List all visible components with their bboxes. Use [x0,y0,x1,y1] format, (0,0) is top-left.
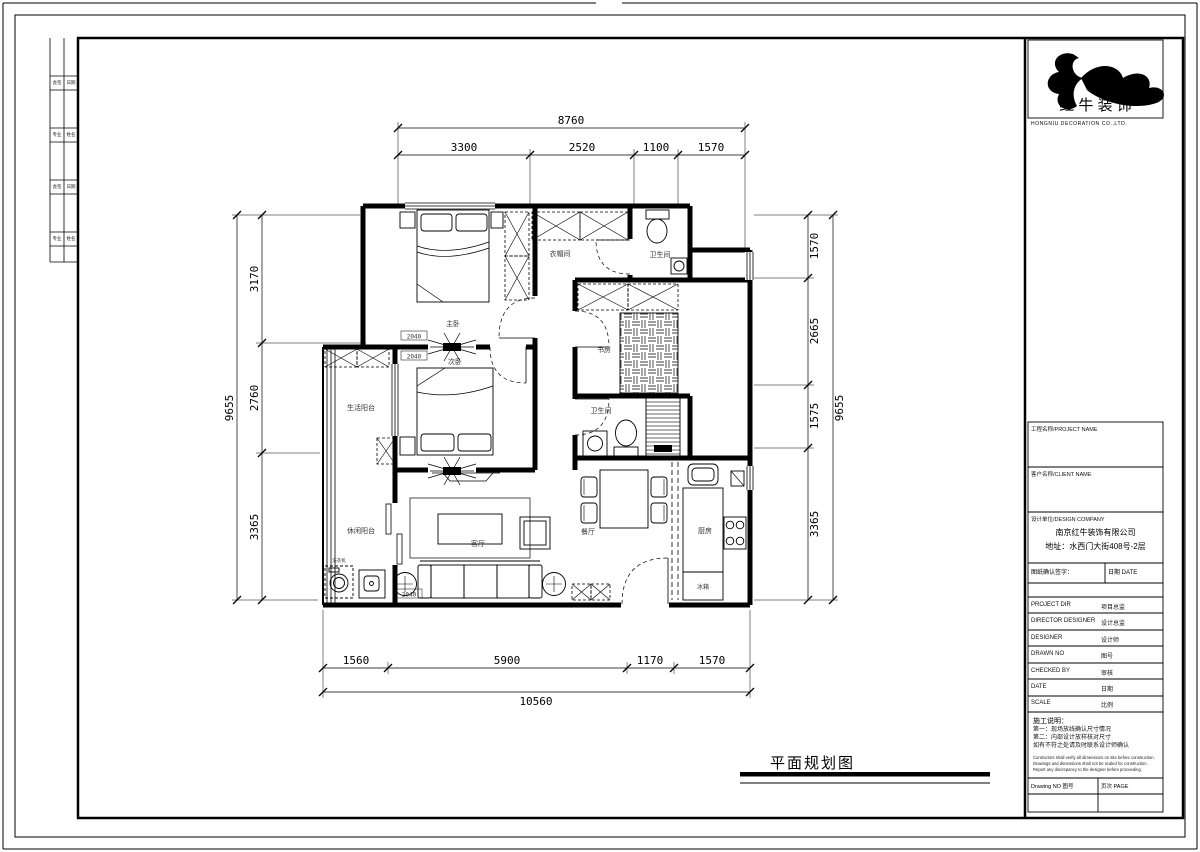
sheet-title: 平面规划图 [770,752,855,773]
floor-plan [323,202,755,610]
note-line: 第二：内部设计放样核对尺寸 [1033,734,1159,742]
living-furniture [394,473,566,598]
dim-top-total: 8760 [558,114,585,127]
wardrobes [325,212,678,600]
door-tag-3: 2040 [402,592,417,599]
confirm-label: 图纸确认签字： [1031,567,1073,576]
wc-fixtures [646,210,687,274]
strip-cell: 姓名 [64,128,78,142]
company-address: 地址：水西门大街408号-2层 [1028,541,1163,552]
strip-cell: 专业 [50,232,64,246]
label-bath: 卫生间 [591,406,612,415]
field-project-name: 工程名称/PROJECT NAME [1031,425,1166,433]
dim-right-total: 9655 [833,395,846,422]
field-design-company: 设计单位/DESIGN COMPANY [1031,515,1166,523]
svg-text:1570: 1570 [698,141,725,154]
svg-text:2760: 2760 [248,385,261,412]
tb-row: CHECKED BY审核 [1031,668,1161,674]
door-tag-1: 2040 [407,334,422,341]
label-kitchen: 厨房 [698,526,712,535]
sliding-doors [386,462,678,600]
balcony-fixtures [325,566,385,598]
footer-drawing-no: Drawing NO 图号 [1031,782,1073,790]
tb-row: DESIGNER设计师 [1031,635,1161,641]
tb-row: DRAWN NO图号 [1031,651,1161,657]
svg-text:3365: 3365 [808,511,821,538]
drawing-sheet: 主卧 衣帽间 卫生间 次卧 书房 卫生间 生活阳台 休闲阳台 客厅 餐厅 厨房 … [0,0,1200,852]
strip-cell: 姓名 [64,232,78,246]
svg-text:1570: 1570 [699,654,726,667]
svg-text:1575: 1575 [808,403,821,430]
cad-linework: 主卧 衣帽间 卫生间 次卧 书房 卫生间 生活阳台 休闲阳台 客厅 餐厅 厨房 … [0,0,1200,852]
strip-cell: 日期 [64,76,78,90]
svg-text:1570: 1570 [808,233,821,260]
confirm-date-label: 日期 DATE [1108,567,1137,576]
field-client-name: 客户名称/CLIENT NAME [1031,470,1166,478]
label-balcony-top: 生活阳台 [347,403,375,412]
label-living: 客厅 [471,539,485,548]
label-fridge: 冰箱 [697,583,709,591]
svg-text:2665: 2665 [808,318,821,345]
page-borders [3,3,1197,849]
label-master: 主卧 [446,319,460,328]
dim-left-total: 9655 [223,395,236,422]
svg-text:3300: 3300 [451,141,478,154]
svg-text:1100: 1100 [643,141,670,154]
kitchen-fixtures [683,464,746,600]
footer-page: 页次 PAGE [1101,782,1128,790]
note-line: 第一：现场放线确认尺寸情况 [1033,726,1159,734]
label-washer: 洗衣机 [332,557,346,564]
sheet-title-underline [740,772,990,783]
notes-title: 施工说明： [1033,716,1068,726]
dim-bottom-total: 10560 [519,695,552,708]
wall-openings [391,202,755,610]
dining-set [581,470,667,528]
door-tag-2: 2040 [407,354,422,361]
tb-row: PROJECT DIR项目总监 [1031,602,1161,608]
tatami-bed [620,313,678,393]
logo-subtext: HONGNIU DECORATION CO.,LTD. [1031,121,1151,127]
strip-cell: 日期 [64,180,78,194]
strip-cell: 专业 [50,128,64,142]
opening-symbols [428,333,476,485]
note-line-en: Report any discrepancy to the designer b… [1033,767,1159,773]
strip-cell: 会签 [50,76,64,90]
svg-text:5900: 5900 [494,654,521,667]
tb-row: DIRECTOR DESIGNER设计总监 [1031,618,1161,624]
label-study: 书房 [597,345,611,354]
logo-name: 红 牛 装 饰 [1028,94,1163,115]
note-line: 如有不符之处请及时联系设计师确认 [1033,742,1159,750]
label-cloak: 衣帽间 [550,249,571,258]
svg-text:2520: 2520 [569,141,596,154]
tb-row: SCALE比例 [1031,700,1161,706]
company-name: 南京红牛装饰有限公司 [1028,527,1163,538]
master-bed [400,210,503,302]
svg-text:3170: 3170 [248,266,261,293]
bedroom2-bed [400,368,493,455]
label-wc: 卫生间 [650,250,671,259]
strip-cell: 会签 [50,180,64,194]
signature-strip [50,38,78,262]
svg-text:1560: 1560 [343,654,370,667]
tb-row: DATE日期 [1031,684,1161,690]
svg-text:3365: 3365 [248,514,261,541]
label-balcony-bottom: 休闲阳台 [347,526,375,535]
svg-text:1170: 1170 [637,654,664,667]
label-dining: 餐厅 [581,527,595,536]
label-bed2: 次卧 [448,357,462,366]
